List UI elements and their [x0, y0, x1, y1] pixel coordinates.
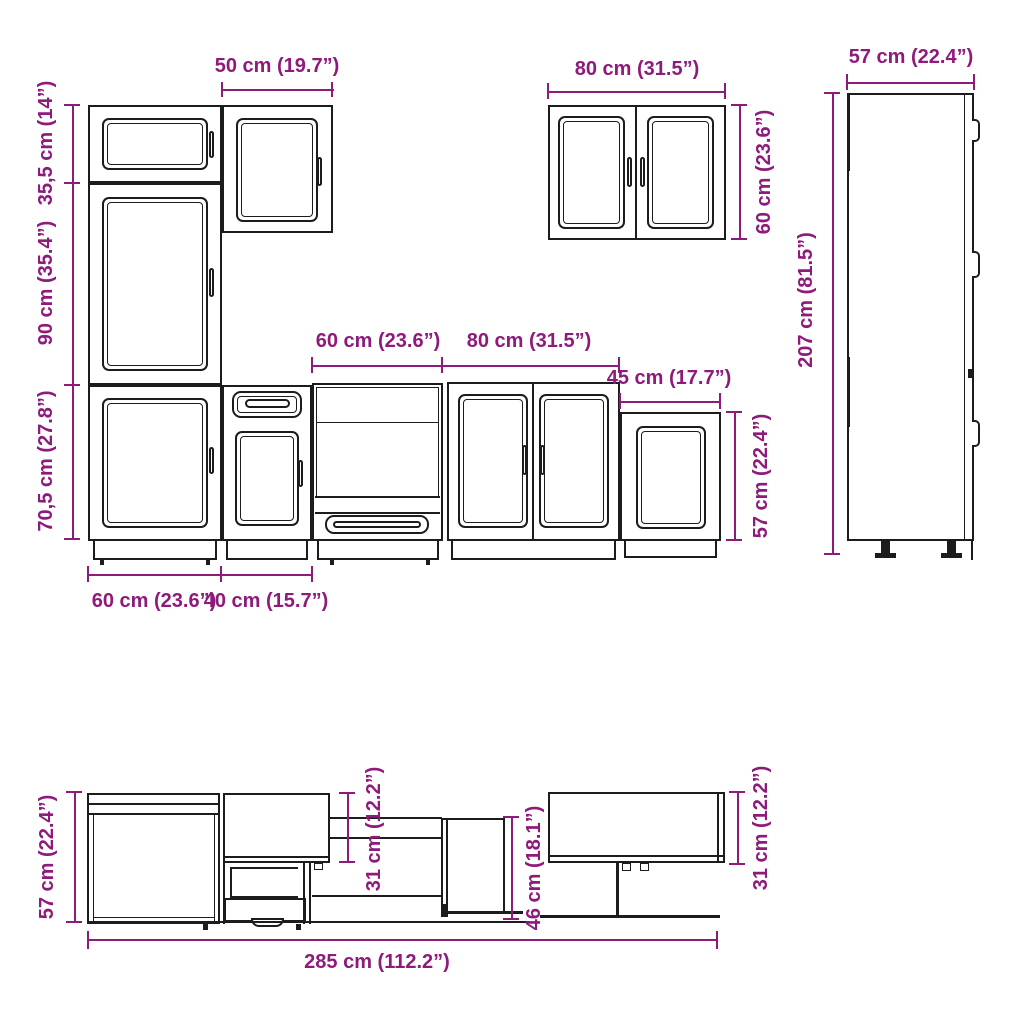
side-bottom-rail-right: [540, 915, 720, 918]
foot-mark: [203, 924, 208, 930]
side-base-inner-wall-left: [93, 815, 94, 921]
side-drawer-unit-wall-right-inner: [303, 863, 305, 924]
side-base-inner-wall-right: [214, 815, 215, 921]
foot-mark: [296, 924, 301, 930]
side-wall-cabinet-left-outline: [223, 793, 330, 863]
dim-label-57cm-side: 57 cm (22.4”): [37, 795, 57, 920]
side-wall-cabinet-right-hinge-1: [622, 863, 631, 871]
side-wall-cabinet-right-bottom-line: [550, 855, 723, 857]
side-open-unit-wall-right: [503, 818, 505, 913]
side-base-worktop-line-2: [89, 813, 218, 815]
dim-label-46cm: 46 cm (18.1”): [524, 806, 544, 931]
side-open-unit-corner: [441, 904, 448, 917]
side-wall-cabinet-left-hinge: [314, 863, 323, 870]
side-base-inner-bottom: [93, 917, 215, 918]
dim-label-31cm-right: 31 cm (12.2”): [751, 766, 771, 891]
dim-label-31cm-left: 31 cm (12.2”): [364, 767, 384, 892]
side-wall-cabinet-left-bottom-line: [225, 856, 328, 858]
side-drawer-unit-open-top: [230, 867, 298, 869]
dim-label-285cm: 285 cm (112.2”): [304, 952, 450, 972]
side-kick-line: [87, 921, 530, 923]
side-base-worktop-line-1: [89, 803, 218, 805]
side-wall-cabinet-right-hinge-2: [640, 863, 649, 871]
side-drawer-unit-open-left: [230, 867, 232, 898]
side-wall-cabinet-right-outline: [548, 792, 725, 863]
kitchen-cabinet-dimension-diagram: 50 cm (19.7”) 35,5 cm (14”) 90 cm (35.4”…: [0, 0, 1024, 1024]
side-open-unit-wall-left-inner: [446, 818, 448, 915]
side-drawer-unit-wall-left-outer: [218, 863, 220, 924]
side-support-post: [616, 863, 619, 916]
side-wall-cabinet-right-door-edge: [717, 794, 719, 861]
side-rail-lower: [312, 895, 442, 897]
side-drawer-unit-wall-right-outer: [309, 863, 311, 924]
side-open-unit-wall-left-outer: [441, 818, 443, 915]
side-open-unit-top: [441, 818, 505, 820]
side-view: 57 cm (22.4”) 31 cm (12.2”) 46 cm (18.1”…: [0, 0, 1024, 1024]
